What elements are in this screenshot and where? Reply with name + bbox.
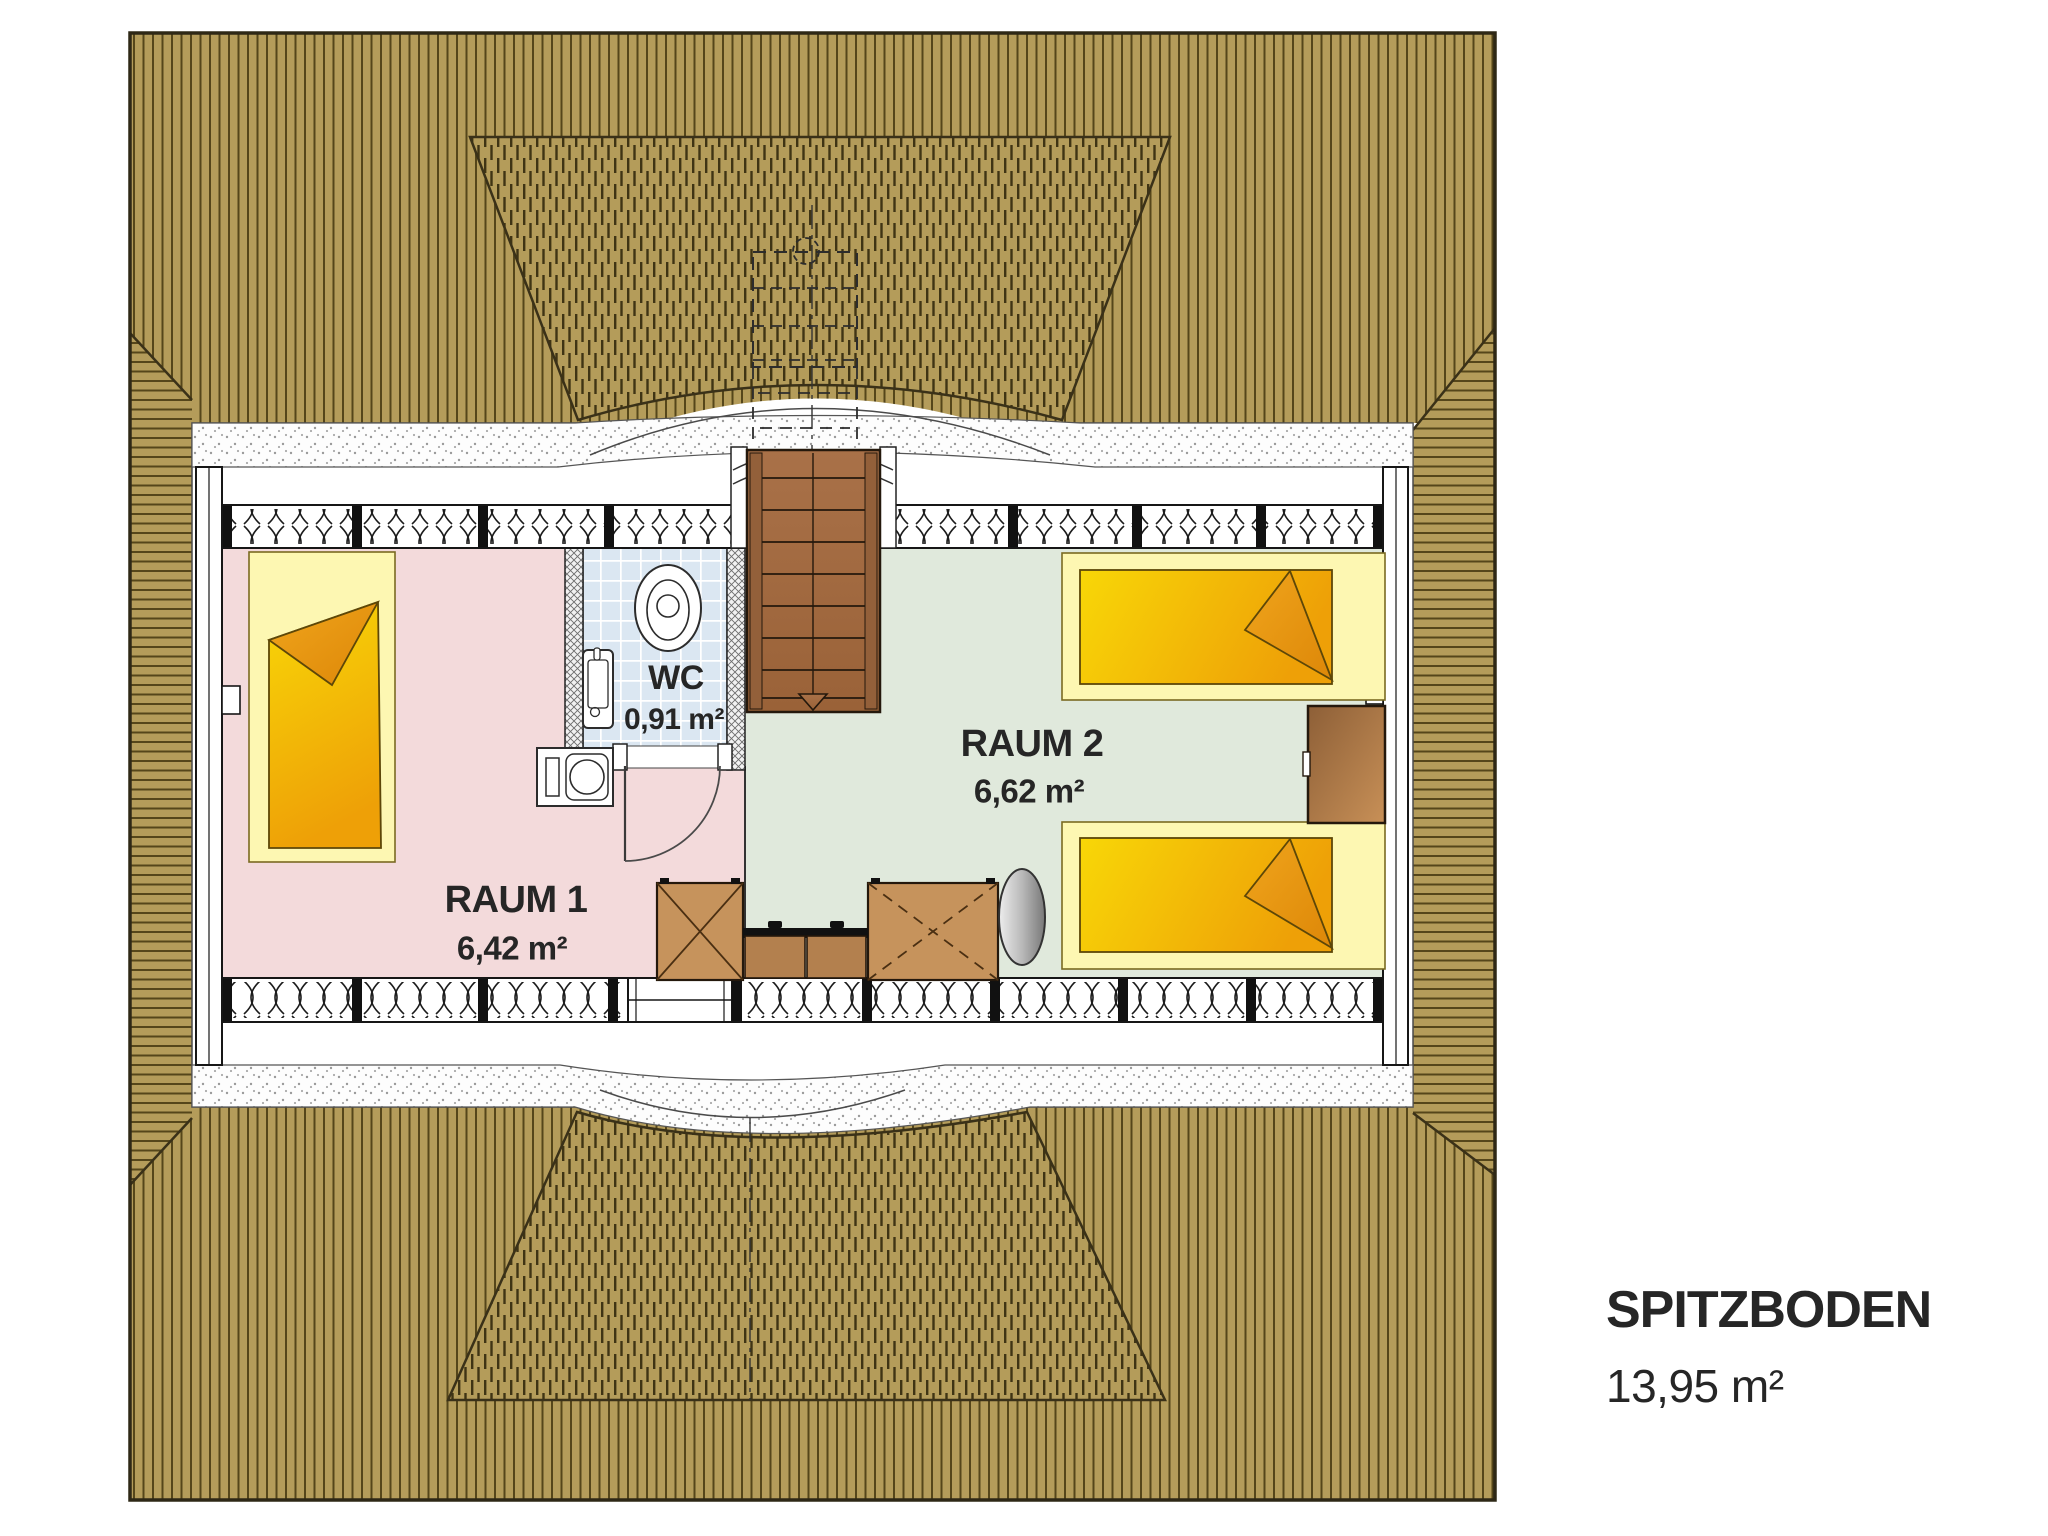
- bottom-wall-right-insulation: [736, 982, 1379, 1018]
- wc-wall-left: [565, 548, 583, 770]
- raum2-area-label: 6,62 m²: [974, 775, 1084, 808]
- sideboard-knob-1: [768, 921, 782, 928]
- roof-left-end: [130, 333, 192, 1185]
- stair-flank-left: [731, 447, 747, 548]
- toilet-icon: [635, 565, 701, 651]
- wardrobe-box-1: [657, 878, 743, 980]
- stair-flank-right: [880, 447, 896, 548]
- sideboard-knob-2: [830, 921, 844, 928]
- top-wall-right-insulation: [884, 509, 1379, 544]
- tv-dish: [999, 869, 1045, 965]
- stair-stringer-right: [865, 453, 877, 709]
- washing-machine-icon: [537, 748, 613, 806]
- wc-name-label: WC: [648, 661, 704, 695]
- plan-title: SPITZBODEN: [1606, 1284, 1931, 1336]
- raum1-name-label: RAUM 1: [445, 881, 588, 919]
- wc-area-label: 0,91 m²: [624, 705, 724, 735]
- wc-wall-right: [727, 548, 745, 770]
- bottom-window: [628, 978, 732, 1022]
- floorplan-page: RAUM 1 6,42 m² WC 0,91 m² RAUM 2 6,62 m²…: [0, 0, 2048, 1536]
- cabinet: [1308, 706, 1385, 823]
- cabinet-handle: [1303, 752, 1310, 776]
- sideboard: [743, 921, 868, 978]
- door-threshold: [620, 746, 720, 768]
- stair-stringer-left: [750, 453, 762, 709]
- bed-raum1: [249, 552, 395, 862]
- wardrobe-box-2: [868, 878, 998, 980]
- raum1-area-label: 6,42 m²: [457, 932, 567, 965]
- bed-raum2-bottom: [1062, 822, 1385, 969]
- window-handle-left: [222, 686, 240, 714]
- dormer-top-fan: [470, 137, 1170, 420]
- plan-total-area: 13,95 m²: [1606, 1363, 1784, 1409]
- bed-raum2-top: [1062, 553, 1385, 700]
- roof-right-end: [1413, 328, 1495, 1175]
- sink-icon: [583, 648, 613, 728]
- staircase: [731, 447, 896, 712]
- bottom-wall-left-insulation: [226, 982, 624, 1018]
- raum2-name-label: RAUM 2: [961, 725, 1104, 763]
